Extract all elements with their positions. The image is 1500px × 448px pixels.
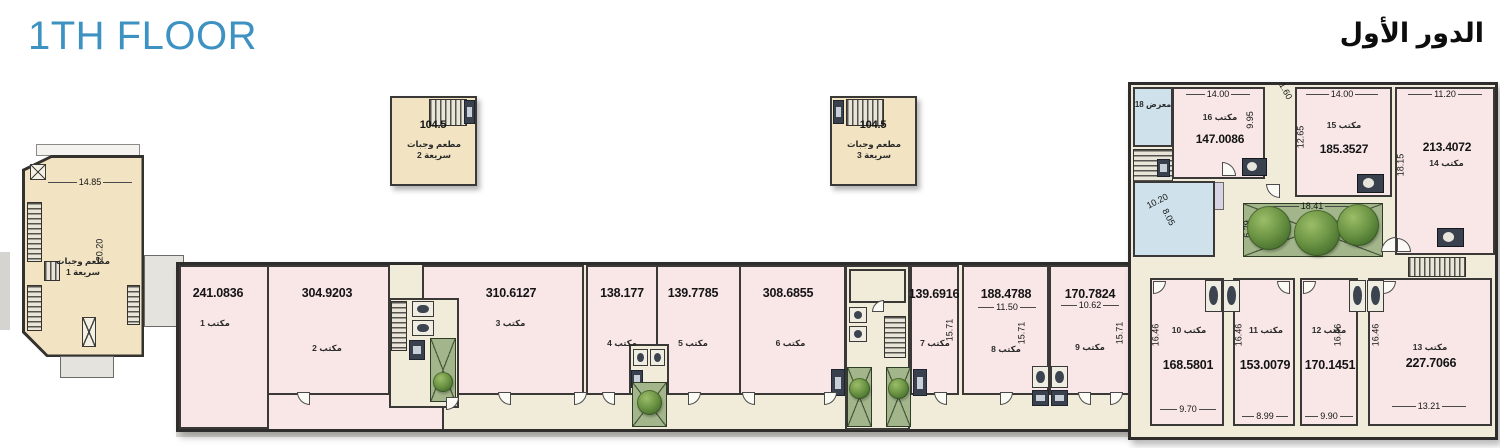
office-16-height-dim: 9.95 (1245, 111, 1255, 129)
office-11-label: مكتب 11 (1243, 325, 1289, 336)
wc-icon (1223, 280, 1240, 312)
office-8-area: 188.4788 (967, 287, 1045, 301)
bottom-wing (60, 356, 114, 378)
tree-icon (637, 390, 662, 415)
office-13-width-dim: 13.21 (1390, 401, 1468, 411)
office-4-label: مكتب 4 (593, 338, 651, 349)
stairs-icon (884, 316, 906, 358)
office-13-label: مكتب 13 (1405, 342, 1455, 353)
office-3-label: مكتب 3 (483, 318, 538, 329)
office-13-area: 227.7066 (1392, 356, 1470, 370)
floor-plan-canvas: 1TH FLOOR الدور الأول 14.85 20.20 مطعم و… (0, 0, 1500, 448)
office-10-label: مكتب 10 (1165, 325, 1213, 336)
office-6-area: 308.6855 (744, 286, 832, 300)
wc-icon (1349, 280, 1366, 312)
office-1-label: مكتب 1 (190, 318, 240, 329)
office-7-area: 139.6916 (906, 287, 962, 301)
office-16-area: 147.0086 (1181, 132, 1259, 146)
tree-icon (433, 372, 453, 392)
office-5-label: مكتب 5 (664, 338, 722, 349)
wc-icon (650, 349, 665, 366)
tree-icon (849, 378, 870, 399)
planter (430, 338, 456, 402)
tree-icon (1247, 206, 1291, 250)
parapet-band (36, 144, 140, 156)
wc-icon (1032, 366, 1049, 388)
wc-icon (849, 326, 867, 342)
wc-icon (1367, 280, 1384, 312)
elevator-icon (409, 340, 425, 360)
office-3-area: 310.6127 (465, 286, 557, 300)
office-14-area: 213.4072 (1407, 140, 1487, 154)
office-15-area: 185.3527 (1301, 142, 1387, 156)
stairs-icon (27, 285, 42, 331)
restaurant-2-label: مطعم وجبات سريعة 2 (404, 139, 464, 161)
office-2-area: 304.9203 (287, 286, 367, 300)
elevator-icon (1051, 390, 1068, 406)
office-11-width-dim: 8.99 (1240, 411, 1290, 421)
office-9-label: مكتب 9 (1065, 342, 1115, 353)
elevator-icon (913, 369, 927, 396)
office-8-height-dim: 15.71 (1016, 322, 1026, 345)
room-office-11 (1233, 278, 1295, 426)
office-4-area: 138.177 (589, 286, 655, 300)
wc-icon (1205, 280, 1222, 312)
room-gallery-18 (1133, 87, 1173, 147)
office-12-label: مكتب 12 (1306, 325, 1352, 336)
wc-icon (1357, 174, 1384, 193)
stairs-icon (27, 202, 42, 262)
stairs-icon (391, 301, 407, 351)
elevator-icon (1157, 159, 1170, 177)
x-brace-icon (30, 164, 46, 180)
office-15-label: مكتب 15 (1318, 120, 1370, 131)
restaurant-2-area: 104.5 (398, 119, 468, 131)
office-12-area: 170.1451 (1301, 358, 1359, 372)
ground-shadow (176, 432, 1138, 437)
restaurant-1-width-dim: 14.85 (46, 177, 134, 187)
room-office-6 (739, 265, 846, 395)
office-12-width-dim: 9.90 (1303, 411, 1355, 421)
office-9-height-dim: 15.71 (1114, 322, 1124, 345)
tree-icon (888, 378, 909, 399)
elevator-icon (1032, 390, 1049, 406)
office-10-height-dim: 16.46 (1150, 324, 1160, 347)
x-brace-icon (82, 317, 96, 347)
edge-fragment (0, 252, 10, 330)
office-16-width-dim: 14.00 (1184, 89, 1252, 99)
office-14-width-dim: 11.20 (1406, 89, 1484, 99)
office-8-label: مكتب 8 (981, 344, 1031, 355)
office-14-height-dim: 18.15 (1395, 154, 1405, 177)
room-office-2 (267, 265, 390, 395)
stairs-icon (1408, 257, 1466, 277)
office-1-area: 241.0836 (178, 286, 258, 300)
tree-icon (1337, 204, 1379, 246)
wc-icon (1437, 228, 1464, 247)
core-c-room (849, 269, 906, 303)
office-9-width-dim: 10.62 (1059, 300, 1121, 310)
office-16-label: مكتب 16 (1196, 112, 1244, 123)
office-8-width-dim: 11.50 (976, 302, 1038, 312)
restaurant-3-area: 104.5 (838, 119, 908, 131)
stairs-icon (127, 285, 140, 325)
office-10-width-dim: 9.70 (1158, 404, 1218, 414)
wc-icon (412, 301, 434, 317)
page-title: 1TH FLOOR (28, 14, 257, 59)
restaurant-1-label: مطعم وجبات سريعة 1 (52, 256, 114, 278)
office-2-label: مكتب 2 (302, 343, 352, 354)
office-11-height-dim: 16.46 (1233, 324, 1243, 347)
wc-icon (633, 349, 648, 366)
office-5-area: 139.7785 (654, 286, 732, 300)
office-14-label: مكتب 14 (1419, 158, 1474, 169)
office-6-label: مكتب 6 (763, 338, 818, 349)
office-11-area: 153.0079 (1236, 358, 1294, 372)
wc-icon (1242, 158, 1267, 176)
office-10-area: 168.5801 (1152, 358, 1224, 372)
gallery-18-label: معرض 18 (1134, 100, 1172, 110)
office-13-height-dim: 16.46 (1370, 324, 1380, 347)
office-7-height-dim: 15.71 (944, 319, 954, 342)
wc-icon (1051, 366, 1068, 388)
office-9-area: 170.7824 (1051, 287, 1129, 301)
wc-icon (849, 307, 867, 323)
page-title-arabic: الدور الأول (1340, 18, 1484, 49)
restaurant-3-label: مطعم وجبات سريعة 3 (844, 139, 904, 161)
wc-icon (412, 320, 434, 336)
office-15-width-dim: 14.00 (1304, 89, 1380, 99)
tree-icon (1294, 210, 1340, 256)
